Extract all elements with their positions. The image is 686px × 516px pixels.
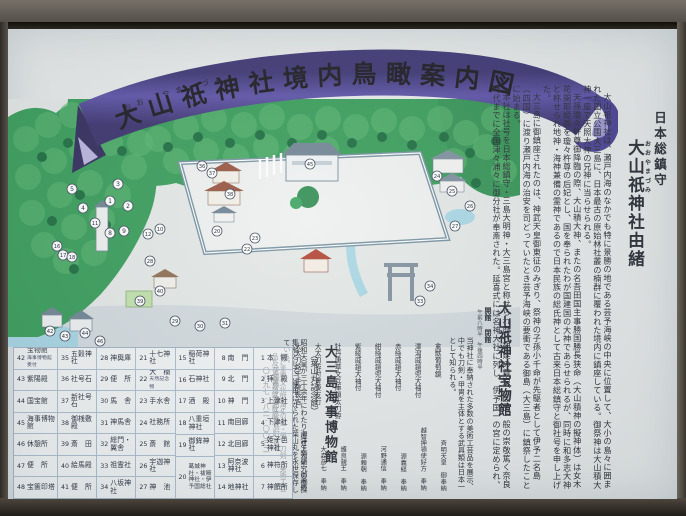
svg-text:44: 44 xyxy=(82,331,89,337)
legend-item-label: 新社号石 xyxy=(71,394,95,409)
legend-item-label: 十七神社 xyxy=(149,351,173,366)
legend-item-number: 26 xyxy=(137,463,147,470)
legend-item: 33祖霊社 xyxy=(97,455,135,477)
treasure-name: 赤絲威鎧大袖付 xyxy=(393,343,401,391)
legend-column: 8南 門9北 門10神 門11南回廊12北回廊13阿奈波神社14地神社 xyxy=(214,348,253,498)
legend-item: 2拝 殿 xyxy=(254,369,292,391)
legend-item: 21十七神社 xyxy=(136,348,174,369)
legend-item-label: 葛城神社・祓殿神社・伊予国総社 xyxy=(189,464,213,490)
legend-item: 5姫子邑神社 xyxy=(254,433,292,455)
legend-item-label: 酒 殿 xyxy=(189,398,210,405)
legend-item-label: 南 門 xyxy=(228,355,249,362)
legend-item-number: 44 xyxy=(15,398,25,405)
legend-item-label: 神輿庫 xyxy=(110,355,131,362)
legend-item-label: 神符所 xyxy=(267,462,288,469)
legend-item-label: 南回廊 xyxy=(228,419,249,426)
legend-item-label: 北回廊 xyxy=(228,441,249,448)
legend-item-label: 下津社 xyxy=(267,419,288,426)
legend-item-number: 17 xyxy=(177,398,187,405)
svg-text:31: 31 xyxy=(222,321,229,327)
treasure-donor: 越智押領使好方 奉納 xyxy=(418,427,427,491)
legend-item: 7神饌所 xyxy=(254,476,292,498)
legend-item-number: 29 xyxy=(98,376,108,383)
map-marker-1: 1 xyxy=(105,196,115,206)
svg-text:8: 8 xyxy=(108,230,112,237)
treasure-donor: 河野通信 奉納 xyxy=(378,446,387,491)
legend-item-number: 34 xyxy=(98,484,108,491)
legend-item-number: 38 xyxy=(59,420,69,427)
legend-item: 48宝篋印塔 xyxy=(14,476,57,498)
legend-item: 35五穀神社 xyxy=(58,348,96,369)
legend-item-label: 神 池 xyxy=(149,484,170,491)
legend-item-number: 41 xyxy=(59,484,69,491)
legend-item-number: 13 xyxy=(216,463,226,470)
museum-subtitle: （葉山丸記念館） xyxy=(309,331,320,493)
map-marker-39: 39 xyxy=(135,296,145,306)
legend-item: 4下津社 xyxy=(254,412,292,434)
yuisho-title-furigana: おおやまづみ xyxy=(644,139,651,195)
map-marker-28: 28 xyxy=(145,256,155,266)
svg-text:12: 12 xyxy=(145,232,152,238)
legend-item: 17酒 殿 xyxy=(176,390,214,412)
legend-item-number: 36 xyxy=(59,376,69,383)
map-marker-17: 17 xyxy=(58,250,68,260)
shrine-pond xyxy=(445,209,475,225)
legend-item-number: 27 xyxy=(137,484,147,491)
legend-item: 41便 所 xyxy=(58,476,96,498)
legend-item-label: 便 所 xyxy=(27,462,48,469)
close-label: 閉館 xyxy=(483,329,493,343)
homotsukan-hours: 開館閉館 xyxy=(483,301,493,493)
svg-text:46: 46 xyxy=(97,339,104,345)
legend-item-label: 上津社 xyxy=(267,398,288,405)
legend-item: 24社務所 xyxy=(136,412,174,434)
legend-item-label: 拝 殿 xyxy=(267,376,288,383)
map-marker-9: 9 xyxy=(119,226,129,236)
legend-item-label: 姫子邑神社 xyxy=(267,437,291,452)
svg-text:20: 20 xyxy=(214,229,221,235)
map-marker-4: 4 xyxy=(78,203,88,213)
legend-item-number: 1 xyxy=(255,355,265,362)
map-marker-34: 34 xyxy=(425,281,435,291)
legend-item-number: 47 xyxy=(15,463,25,470)
legend-item-number: 16 xyxy=(177,377,187,384)
legend-item: 47便 所 xyxy=(14,455,57,477)
legend-item-number: 4 xyxy=(255,420,265,427)
svg-text:28: 28 xyxy=(147,259,154,265)
legend-item-number: 9 xyxy=(216,376,226,383)
legend-item-label: 紫陽殿 xyxy=(27,376,48,383)
legend-item-label: 総門・翼舎 xyxy=(110,437,134,452)
legend-item: 6神符所 xyxy=(254,455,292,477)
svg-text:40: 40 xyxy=(157,289,164,295)
legend-item: 28神輿庫 xyxy=(97,348,135,369)
legend-column: 28神輿庫29便 所30馬 舎31神馬舎32総門・翼舎33祖霊社34八坂神社 xyxy=(96,348,135,498)
legend-item-number: 12 xyxy=(216,441,226,448)
legend-item-number: 14 xyxy=(216,484,226,491)
legend-item-label: 手水舎 xyxy=(149,398,170,405)
legend-item: 34八坂神社 xyxy=(97,476,135,498)
legend-item: 45海事博物館 xyxy=(14,412,57,434)
legend-column: 35五穀神社36社号石37新社号石38御桟敷殿39斎 田40絵馬殿41便 所 xyxy=(57,348,96,498)
legend-item-label: 海事博物館 xyxy=(27,416,56,431)
map-marker-42: 42 xyxy=(45,326,55,336)
svg-text:29: 29 xyxy=(172,319,179,325)
legend-item-number: 2 xyxy=(255,376,265,383)
legend-item-label: 阿奈波神社 xyxy=(228,459,252,474)
legend-item-number: 20 xyxy=(177,474,187,481)
frame-shadow xyxy=(0,22,686,29)
legend-item: 16石神社 xyxy=(176,369,214,391)
legend-item: 11南回廊 xyxy=(215,412,253,434)
legend-item-number: 32 xyxy=(98,441,108,448)
legend-item-number: 8 xyxy=(216,355,226,362)
map-marker-43: 43 xyxy=(60,331,70,341)
svg-text:11: 11 xyxy=(92,221,99,227)
legend-item: 12北回廊 xyxy=(215,433,253,455)
legend-item-label: 斎 館 xyxy=(149,441,170,448)
map-marker-2: 2 xyxy=(123,201,133,211)
treasure-item: 澤瀉威鎧兜大袖付越智押領使好方 奉納 xyxy=(408,301,427,493)
svg-text:30: 30 xyxy=(197,324,204,330)
legend-item-label: 休憩所 xyxy=(27,441,48,448)
legend-item-number: 45 xyxy=(15,420,25,427)
map-marker-23: 23 xyxy=(250,233,260,243)
legend-item-number: 48 xyxy=(15,484,25,491)
legend-item-label: 社務所 xyxy=(149,419,170,426)
frame-right-bar xyxy=(677,22,686,500)
legend-item-label: 八坂神社 xyxy=(110,480,134,495)
legend-item-number: 25 xyxy=(137,441,147,448)
legend-item: 43紫陽殿 xyxy=(14,369,57,391)
map-marker-44: 44 xyxy=(80,328,90,338)
legend-table: 42宝物館海事博物館 受付43紫陽殿44国宝館45海事博物館46休憩所47便 所… xyxy=(13,347,293,499)
legend-item-label: 神饌所 xyxy=(267,484,288,491)
treasure-donor: 護良親王 奉納 xyxy=(338,446,347,491)
yuisho-paragraph: 大三島に御鎮座されたのは、神武天皇御東征のみぎり、祭神の子孫小千命が先駆者として… xyxy=(512,85,542,495)
map-marker-26: 26 xyxy=(465,201,475,211)
homotsukan-hours-note: 午前八時半 午後四時半 xyxy=(475,301,483,493)
svg-text:18: 18 xyxy=(69,255,76,261)
legend-item: 15稲荷神社 xyxy=(176,348,214,369)
legend-item: 29便 所 xyxy=(97,369,135,391)
svg-text:25: 25 xyxy=(449,189,456,195)
legend-item-number: 28 xyxy=(98,355,108,362)
legend-item-number: 23 xyxy=(137,398,147,405)
legend-item: 8南 門 xyxy=(215,348,253,369)
svg-text:9: 9 xyxy=(122,228,126,235)
legend-item-sublabel: 海事博物館 受付 xyxy=(27,355,56,369)
legend-item: 39斎 田 xyxy=(58,433,96,455)
svg-text:23: 23 xyxy=(252,236,259,242)
map-marker-22: 22 xyxy=(242,244,252,254)
yuisho-paragraph: 天孫瓊々杵尊御降臨の際、大山積大神、またの名吾田国主事勝国勝長狭命（大山積神の擬… xyxy=(542,85,582,495)
legend-item: 38御桟敷殿 xyxy=(58,412,96,434)
treasure-name: 禽獣葡萄鏡 xyxy=(433,343,441,378)
legend-item: 46休憩所 xyxy=(14,433,57,455)
legend-item-number: 15 xyxy=(177,355,187,362)
map-marker-20: 20 xyxy=(212,226,222,236)
legend-item: 30馬 舎 xyxy=(97,390,135,412)
legend-item: 22大 楠天然記念物 xyxy=(136,369,174,391)
yuisho-header: 日本総鎮守 xyxy=(650,85,669,495)
legend-item-number: 19 xyxy=(177,442,187,449)
open-label: 開館 xyxy=(484,307,492,321)
legend-item-label: 祖霊社 xyxy=(110,462,131,469)
legend-item: 27神 池 xyxy=(136,476,174,498)
legend-item: 9北 門 xyxy=(215,369,253,391)
legend-item-label: 北 門 xyxy=(228,376,249,383)
treasure-item: 紺絲威鎧兜大袖付河野通信 奉納 xyxy=(368,301,387,493)
legend-item-number: 10 xyxy=(216,398,226,405)
legend-item: 13阿奈波神社 xyxy=(215,455,253,477)
svg-text:27: 27 xyxy=(452,224,459,230)
map-marker-8: 8 xyxy=(105,228,115,238)
legend-item-number: 30 xyxy=(98,398,108,405)
legend-item: 42宝物館海事博物館 受付 xyxy=(14,348,57,369)
legend-item: 37新社号石 xyxy=(58,390,96,412)
svg-text:26: 26 xyxy=(467,204,474,210)
legend-item-number: 5 xyxy=(255,441,265,448)
svg-text:4: 4 xyxy=(81,205,85,212)
legend-item-number: 42 xyxy=(15,355,25,362)
legend-item: 3上津社 xyxy=(254,390,292,412)
map-marker-46: 46 xyxy=(95,336,105,346)
map-marker-40: 40 xyxy=(155,286,165,296)
legend-item-number: 37 xyxy=(59,398,69,405)
legend-item: 19御鉾神社 xyxy=(176,434,214,456)
map-marker-31: 31 xyxy=(220,318,230,328)
map-marker-16: 16 xyxy=(52,241,62,251)
svg-text:5: 5 xyxy=(70,186,74,193)
map-marker-12: 12 xyxy=(143,229,153,239)
legend-item-number: 43 xyxy=(15,376,25,383)
legend-item-number: 11 xyxy=(216,420,226,427)
legend-item-label: 大 楠天然記念物 xyxy=(149,369,173,390)
svg-text:39: 39 xyxy=(137,299,144,305)
homotsukan-panel: 大山祇神社宝物館 開館閉館 午前八時半 午後四時半 当神社に奉納された多数の美術… xyxy=(337,301,513,493)
legend-item-number: 21 xyxy=(137,355,147,362)
legend-item: 25斎 館 xyxy=(136,433,174,455)
legend-item-number: 6 xyxy=(255,463,265,470)
svg-text:2: 2 xyxy=(126,203,130,210)
legend-item: 40絵馬殿 xyxy=(58,455,96,477)
svg-text:1: 1 xyxy=(108,198,112,205)
legend-item: 23手水舎 xyxy=(136,390,174,412)
photo-frame: 1234589101112161718202223242526272829303… xyxy=(0,0,686,516)
legend-item-label: 本 殿 xyxy=(267,355,288,362)
legend-item-label: 五穀神社 xyxy=(71,351,95,366)
map-marker-27: 27 xyxy=(450,221,460,231)
legend-item-number: 35 xyxy=(59,355,69,362)
yuisho-paragraph: 大山祇神社は、瀬戸内海のなかでも特に景勝の地である芸予海峡の中央に位置して、大小… xyxy=(582,85,612,495)
camphor-tree-2 xyxy=(290,197,302,209)
yuisho-title-block: 日本総鎮守 大山祇おおやまづみ神社由緒 xyxy=(623,85,670,495)
legend-item-label: 御鉾神社 xyxy=(189,438,213,453)
treasure-item: 紫綾威鎧大袖付源頼朝 奉納 xyxy=(348,301,367,493)
legend-column: 21十七神社22大 楠天然記念物23手水舎24社務所25斎 館26宇迦神社27神… xyxy=(135,348,174,498)
legend-item-number: 3 xyxy=(255,398,265,405)
legend-item: 32総門・翼舎 xyxy=(97,433,135,455)
legend-item: 26宇迦神社 xyxy=(136,455,174,477)
yuisho-panel: 日本総鎮守 大山祇おおやまづみ神社由緒 大山祇神社は、瀬戸内海のなかでも特に景勝… xyxy=(493,85,669,495)
yuisho-title-rest: 神社由緒 xyxy=(626,195,645,269)
legend-item: 36社号石 xyxy=(58,369,96,391)
legend-item-number: 39 xyxy=(59,441,69,448)
legend-item-label: 稲荷神社 xyxy=(189,351,213,366)
legend-item-label: 神 門 xyxy=(228,398,249,405)
legend-item: 10神 門 xyxy=(215,390,253,412)
legend-item-number: 33 xyxy=(98,463,108,470)
map-marker-29: 29 xyxy=(170,316,180,326)
legend-item: 44国宝館 xyxy=(14,390,57,412)
map-marker-18: 18 xyxy=(67,252,77,262)
svg-text:10: 10 xyxy=(157,227,164,233)
svg-text:38: 38 xyxy=(227,192,234,198)
legend-item-number: 24 xyxy=(137,420,147,427)
svg-text:43: 43 xyxy=(62,334,69,340)
legend-item-number: 18 xyxy=(177,420,187,427)
legend-item-label: 宇迦神社 xyxy=(149,459,173,474)
legend-item-number: 40 xyxy=(59,463,69,470)
legend-item-label: 宝篋印塔 xyxy=(27,484,55,491)
legend-item-sublabel: 天然記念物 xyxy=(149,376,173,390)
frame-left-bar xyxy=(0,22,8,500)
treasure-item: 禽獣葡萄鏡斉明天皇 御奉納 xyxy=(428,301,447,493)
treasure-donor: 源義経 奉納 xyxy=(398,453,407,491)
legend-item-label: 絵馬殿 xyxy=(71,462,92,469)
legend-item-number: 46 xyxy=(15,441,25,448)
legend-item-label: 地神社 xyxy=(228,484,249,491)
legend-item-number: 31 xyxy=(98,420,108,427)
map-marker-25: 25 xyxy=(447,186,457,196)
legend-item-label: 石神社 xyxy=(189,376,210,383)
treasure-donor: 斉明天皇 御奉納 xyxy=(438,440,447,491)
treasure-name: 紫綾威鎧大袖付 xyxy=(353,343,361,391)
legend-item-label: 国宝館 xyxy=(27,398,48,405)
yuisho-title: 大山祇おおやまづみ神社由緒 xyxy=(623,85,651,495)
legend-column: 42宝物館海事博物館 受付43紫陽殿44国宝館45海事博物館46休憩所47便 所… xyxy=(14,348,57,498)
legend-item: 1本 殿 xyxy=(254,348,292,369)
map-marker-11: 11 xyxy=(90,218,100,228)
map-marker-10: 10 xyxy=(155,224,165,234)
legend-item: 18八重垣神社 xyxy=(176,412,214,434)
svg-text:22: 22 xyxy=(244,247,251,253)
treasure-item: 赤絲威鎧大袖付源義経 奉納 xyxy=(388,301,407,493)
treasure-donor: 源頼朝 奉納 xyxy=(358,453,367,491)
legend-item-number: 7 xyxy=(255,484,265,491)
legend-item: 14地神社 xyxy=(215,476,253,498)
legend-item-label: 便 所 xyxy=(110,376,131,383)
signboard: 1234589101112161718202223242526272829303… xyxy=(8,29,677,499)
homotsukan-title: 大山祇神社宝物館 xyxy=(493,301,513,493)
legend-item: 20葛城神社・祓殿神社・伊予国総社 xyxy=(176,456,214,498)
legend-item-label: 神馬舎 xyxy=(110,419,131,426)
svg-text:16: 16 xyxy=(54,244,61,250)
legend-item-label: 便 所 xyxy=(71,484,92,491)
legend-item-label: 社号石 xyxy=(71,376,92,383)
svg-text:42: 42 xyxy=(47,329,54,335)
legend-item-label: 八重垣神社 xyxy=(189,416,213,431)
legend-column: 15稲荷神社16石神社17酒 殿18八重垣神社19御鉾神社20葛城神社・祓殿神社… xyxy=(175,348,214,498)
legend-item-label: 斎 田 xyxy=(71,441,92,448)
frame-top-bar xyxy=(0,0,686,22)
map-marker-38: 38 xyxy=(225,189,235,199)
treasure-name: 紺絲威鎧兜大袖付 xyxy=(373,343,381,398)
legend-item-label: 御桟敷殿 xyxy=(71,416,95,431)
map-marker-30: 30 xyxy=(195,321,205,331)
museum-title: 大三島海事博物館 xyxy=(320,331,339,493)
legend-item-number: 22 xyxy=(137,376,147,383)
yuisho-title-base: 大山祇 xyxy=(626,139,645,195)
frame-bottom-bar xyxy=(0,498,686,516)
legend-column: 1本 殿2拝 殿3上津社4下津社5姫子邑神社6神符所7神饌所 xyxy=(253,348,292,498)
legend-item-label: 馬 舎 xyxy=(110,398,131,405)
homotsukan-intro: 当神社に奉納された多数の美術工芸品を展示、中でも刀剣・甲冑を主体とする武具類は日… xyxy=(448,301,474,493)
svg-text:17: 17 xyxy=(60,253,67,259)
legend-item: 31神馬舎 xyxy=(97,412,135,434)
legend-item-label: 宝物館海事博物館 受付 xyxy=(27,348,56,369)
treasure-name: 澤瀉威鎧兜大袖付 xyxy=(413,343,421,398)
svg-text:34: 34 xyxy=(427,284,434,290)
